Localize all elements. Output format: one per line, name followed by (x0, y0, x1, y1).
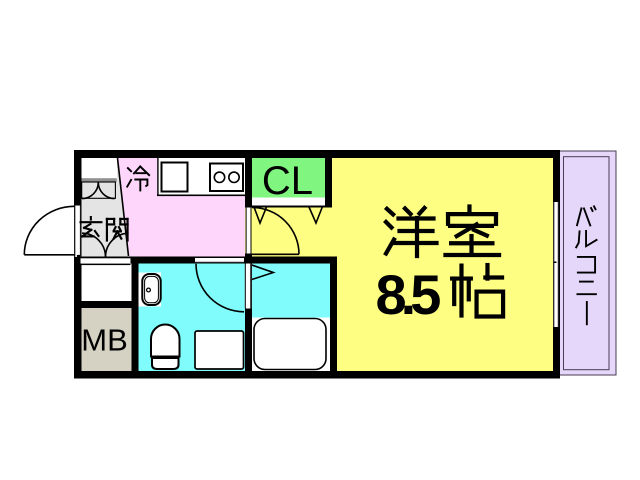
svg-text:8.5: 8.5 (376, 263, 441, 326)
svg-text:MB: MB (81, 323, 128, 358)
svg-text:CL: CL (262, 159, 313, 203)
